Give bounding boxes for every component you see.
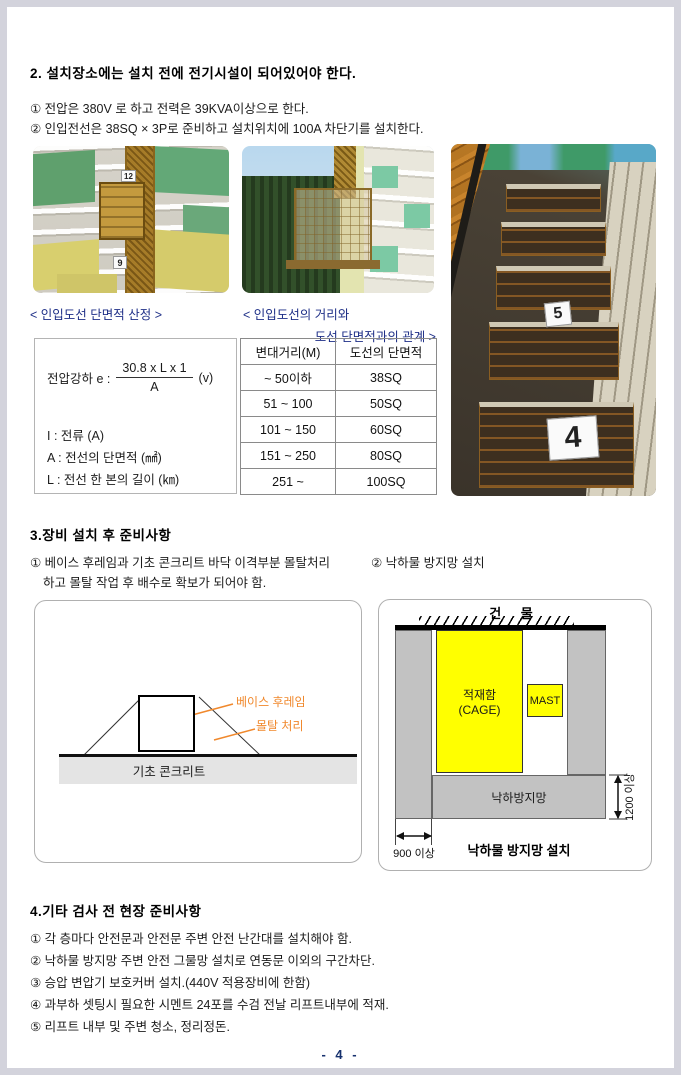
base-frame-square [138, 695, 195, 752]
section4-item-3: ③ 승압 변압기 보호커버 설치.(440V 적용장비에 한함) [30, 972, 310, 991]
cage-block: 적재함 (CAGE) [436, 630, 523, 773]
floor-sign: 4 [547, 415, 600, 460]
formula-denominator: A [116, 378, 192, 394]
section3-item1-line2: 하고 몰탈 작업 후 배수로 확보가 되어야 함. [43, 572, 266, 591]
green-net-patch [33, 150, 95, 206]
table-header-row: 변대거리(M) 도선의 단면적 [241, 339, 437, 365]
table-row: 151 ~ 250 80SQ [241, 443, 437, 469]
mast-label: MAST [530, 695, 561, 707]
hatch-marks [419, 616, 574, 625]
table-row: 51 ~ 100 50SQ [241, 391, 437, 417]
cage-platform-image [286, 260, 380, 269]
hoist-cage-image [99, 182, 145, 240]
floor-sign: 12 [121, 170, 136, 182]
green-net-patch [151, 146, 229, 196]
diagram-lines [35, 601, 361, 862]
green-window-patch [372, 166, 398, 188]
net-block: 낙하방지망 [432, 775, 606, 819]
dimension-height-label: 1200 이상 [621, 762, 635, 832]
floor-sign: 9 [113, 256, 127, 269]
protection-net-diagram: 건 물 적재함 (CAGE) MAST 낙하방지망 [378, 599, 652, 871]
photo-hoist-forest [242, 146, 434, 293]
formula-legend-3: L : 전선 한 본의 길이 (㎞) [47, 469, 179, 488]
net-diagram-caption: 낙하물 방지망 설치 [439, 840, 599, 859]
cell-distance: ~ 50이하 [241, 365, 336, 391]
dimension-width-label: 900 이상 [385, 845, 443, 861]
cell-distance: 101 ~ 150 [241, 417, 336, 443]
base-frame-label: 베이스 후레임 [236, 693, 306, 710]
wire-section-table: 변대거리(M) 도선의 단면적 ~ 50이하 38SQ 51 ~ 100 50S… [240, 338, 437, 495]
formula-intro: 전압강하 e : [47, 368, 110, 387]
cage-label-line1: 적재함 [463, 686, 496, 703]
formula-numerator: 30.8 x L x 1 [116, 361, 192, 378]
right-wall-block [567, 630, 606, 775]
section4-item-1: ① 각 층마다 안전문과 안전문 주변 안전 난간대를 설치해야 함. [30, 928, 352, 947]
mortar-label: 몰탈 처리 [256, 717, 304, 734]
section4-item-5: ⑤ 리프트 내부 및 주변 청소, 정리정돈. [30, 1016, 230, 1035]
section4-item-2: ② 낙하물 방지망 주변 안전 그물망 설치로 연동문 이외의 구간차단. [30, 950, 375, 969]
photo-hoist-facade: 12 9 [33, 146, 229, 293]
table-header-section: 도선의 단면적 [336, 339, 437, 365]
section2-item-2: ② 인입전선은 38SQ × 3P로 준비하고 설치위치에 100A 차단기를 … [30, 118, 424, 137]
left-wall-block [395, 630, 432, 819]
formula-fraction: 30.8 x L x 1 A [116, 361, 192, 394]
horizontal-dimension-arrow [395, 830, 433, 842]
caption-table-line1: < 인입도선의 거리와 [243, 304, 349, 323]
section3-item1-line1: ① 베이스 후레임과 기초 콘크리트 바닥 이격부분 몰탈처리 [30, 552, 330, 571]
caption-formula: < 인입도선 단면적 산정 > [30, 304, 162, 323]
section2-item-1: ① 전압은 380V 로 하고 전력은 39KVA이상으로 한다. [30, 98, 309, 117]
mast-block: MAST [527, 684, 563, 717]
voltage-drop-formula-box: 전압강하 e : 30.8 x L x 1 A (v) I : 전류 (A) A… [34, 338, 237, 494]
base-frame-diagram: 기초 콘크리트 베이스 후레임 몰탈 처리 [34, 600, 362, 863]
section4-heading: 4.기타 검사 전 현장 준비사항 [30, 900, 201, 920]
document-page: 2. 설치장소에는 설치 전에 전기시설이 되어있어야 한다. ① 전압은 38… [0, 0, 681, 1075]
cell-section: 80SQ [336, 443, 437, 469]
table-row: ~ 50이하 38SQ [241, 365, 437, 391]
floor-opening [489, 322, 619, 380]
cell-section: 38SQ [336, 365, 437, 391]
page-number: - 4 - [7, 1047, 674, 1062]
section3-item2: ② 낙하물 방지망 설치 [371, 552, 485, 571]
formula-legend-2: A : 전선의 단면적 (㎟) [47, 447, 162, 466]
net-label: 낙하방지망 [491, 789, 546, 806]
cell-distance: 251 ~ [241, 469, 336, 495]
table-row: 251 ~ 100SQ [241, 469, 437, 495]
cell-distance: 151 ~ 250 [241, 443, 336, 469]
floor-opening [506, 184, 601, 212]
photo-shaft-floors: 5 4 [451, 144, 656, 496]
cage-label-line2: (CAGE) [459, 703, 501, 717]
cell-section: 50SQ [336, 391, 437, 417]
floor-opening [501, 222, 606, 256]
building-facade-image [364, 146, 434, 293]
hoist-cage-image [294, 188, 372, 264]
table-row: 101 ~ 150 60SQ [241, 417, 437, 443]
section4-item-4: ④ 과부하 셋팅시 필요한 시멘트 24포를 수검 전날 리프트내부에 적재. [30, 994, 389, 1013]
page-content: 2. 설치장소에는 설치 전에 전기시설이 되어있어야 한다. ① 전압은 38… [7, 7, 674, 1068]
concrete-label: 기초 콘크리트 [59, 761, 279, 780]
table-header-distance: 변대거리(M) [241, 339, 336, 365]
cell-distance: 51 ~ 100 [241, 391, 336, 417]
section2-heading: 2. 설치장소에는 설치 전에 전기시설이 되어있어야 한다. [30, 62, 356, 82]
yellow-net-patch [57, 274, 117, 293]
formula-unit: (v) [199, 371, 214, 385]
cell-section: 100SQ [336, 469, 437, 495]
section3-heading: 3.장비 설치 후 준비사항 [30, 524, 171, 544]
green-window-patch [404, 204, 430, 228]
yellow-net-patch [153, 229, 229, 292]
cell-section: 60SQ [336, 417, 437, 443]
formula-legend-1: I : 전류 (A) [47, 425, 104, 444]
floor-sign: 5 [544, 301, 572, 328]
